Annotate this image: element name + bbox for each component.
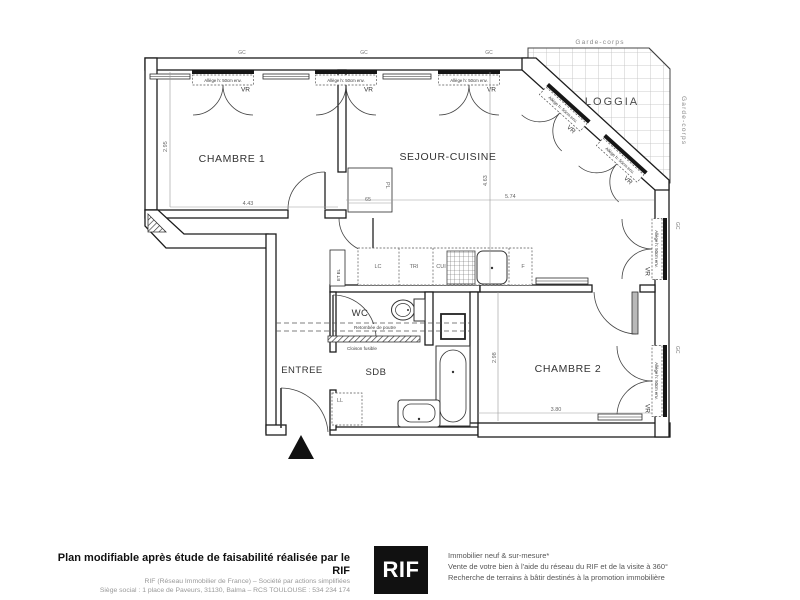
walls bbox=[145, 58, 670, 437]
room-label-loggia: LOGGIA bbox=[585, 96, 639, 108]
footer-services-block: Immobilier neuf & sur-mesure* Vente de v… bbox=[448, 550, 768, 583]
allege-label: Allège h: 50cm env. bbox=[450, 78, 487, 83]
room-label-sdb: SDB bbox=[365, 367, 386, 378]
footer-left-block: Plan modifiable après étude de faisabili… bbox=[40, 552, 350, 595]
door-chambre2-swing bbox=[594, 292, 636, 334]
wall-chambre2-north-a bbox=[480, 285, 592, 292]
footer: Plan modifiable après étude de faisabili… bbox=[0, 540, 800, 600]
vr-label: VR bbox=[644, 267, 651, 276]
vr-label: VR bbox=[644, 404, 651, 413]
footer-service-1: Immobilier neuf & sur-mesure* bbox=[448, 550, 768, 561]
bathtub bbox=[436, 346, 470, 426]
room-label-chambre2: CHAMBRE 2 bbox=[535, 363, 602, 375]
window-sejour-2: Allège h: 50cm env. VR bbox=[438, 70, 500, 115]
allege-label: Allège h: 50cm env. bbox=[327, 78, 364, 83]
wall-chambre1-south-b bbox=[325, 210, 346, 218]
floor-plan-drawing: Allège h: 50cm env. VR Allège h: 50cm en… bbox=[0, 0, 800, 540]
allege-label: Allège h: 50cm env. bbox=[654, 362, 659, 399]
footer-company-line: RIF (Réseau Immobilier de France) – Soci… bbox=[40, 578, 350, 587]
gc-label: GC bbox=[674, 222, 680, 230]
footer-address-line: Siège social : 1 place de Paveurs, 31130… bbox=[40, 587, 350, 596]
wall-wc-east bbox=[425, 292, 433, 345]
dim-chambre2-depth: 2.98 bbox=[492, 352, 498, 363]
door-entrance-swing bbox=[281, 388, 328, 432]
kitchen-tri-label: TRI bbox=[410, 264, 419, 270]
vr-label: VR bbox=[241, 87, 250, 94]
window-chambre2: Allège h: 50cm env. VR bbox=[617, 345, 667, 417]
door-chambre2-leaf bbox=[632, 292, 638, 334]
kitchen-lc-label: LC bbox=[374, 264, 381, 270]
footer-service-3: Recherche de terrains à bâtir destinés à… bbox=[448, 572, 768, 583]
wall-sdb-west-a bbox=[330, 341, 336, 352]
fusible-partition bbox=[328, 336, 420, 342]
rif-logo: RIF bbox=[374, 546, 428, 594]
wall-chambre1-south-a bbox=[145, 210, 288, 218]
dim-chambre1-depth: 2.95 bbox=[163, 141, 169, 152]
window-sejour-east: Allège h: 50cm env. VR bbox=[622, 218, 667, 280]
kitchen: LC TRI CUI F ET EL bbox=[330, 248, 532, 286]
closet-pl-label: PL bbox=[384, 182, 390, 189]
wall-south-a bbox=[266, 425, 286, 435]
radiator-sejour bbox=[536, 278, 588, 284]
room-label-entree: ENTREE bbox=[281, 365, 323, 376]
room-label-sejour: SEJOUR-CUISINE bbox=[399, 151, 496, 163]
washbasin bbox=[398, 400, 440, 427]
room-label-chambre1: CHAMBRE 1 bbox=[199, 153, 266, 165]
vr-label: VR bbox=[487, 87, 496, 94]
technical-duct bbox=[441, 314, 465, 339]
fusible-partition-label: Cloison fusible bbox=[347, 346, 377, 351]
dim-chambre2-width: 3.80 bbox=[551, 407, 562, 413]
fixed-windows bbox=[150, 74, 431, 79]
radiator-chambre2 bbox=[598, 414, 642, 420]
wall-kitchen-south bbox=[330, 285, 480, 292]
allege-label: Allège h: 50cm env. bbox=[654, 230, 659, 267]
wall-north bbox=[145, 58, 527, 70]
door-sejour-swing bbox=[339, 218, 373, 252]
gc-label: GC bbox=[674, 346, 680, 354]
wall-south-b bbox=[330, 427, 478, 435]
wall-chambre2-south bbox=[478, 423, 670, 437]
wall-sdb-east bbox=[470, 292, 478, 423]
floor-plan-page: Allège h: 50cm env. VR Allège h: 50cm en… bbox=[0, 0, 800, 600]
kitchen-cui-label: CUI bbox=[436, 264, 446, 270]
beam-drop-label: Retombée de poutre bbox=[354, 325, 396, 330]
wall-chambre2-north-b bbox=[640, 285, 655, 292]
entrance-arrow-icon bbox=[288, 435, 314, 459]
gc-label: GC bbox=[360, 50, 368, 56]
dim-sejour-width: 5.74 bbox=[505, 194, 516, 200]
window-chambre1: Allège h: 50cm env. VR bbox=[192, 70, 254, 115]
washing-machine-label: LL bbox=[337, 398, 343, 404]
closet-pl: PL bbox=[348, 168, 392, 212]
footer-title: Plan modifiable après étude de faisabili… bbox=[40, 552, 350, 578]
gc-label: GC bbox=[485, 50, 493, 56]
door-chambre1-swing bbox=[288, 172, 325, 209]
garde-corps-top-label: Garde-corps bbox=[575, 39, 624, 46]
wall-entree-west bbox=[266, 234, 276, 433]
toilet bbox=[392, 299, 426, 321]
allege-label: Allège h: 50cm env. bbox=[204, 78, 241, 83]
electrical-box-label: ET EL bbox=[336, 269, 341, 281]
room-label-wc: WC bbox=[352, 308, 369, 319]
washing-machine: LL bbox=[332, 393, 362, 425]
dim-chambre1-width: 4.43 bbox=[243, 201, 254, 207]
vr-label: VR bbox=[364, 87, 373, 94]
gc-label: GC bbox=[238, 50, 246, 56]
dim-sejour-depth: 4.63 bbox=[483, 175, 489, 186]
wall-west bbox=[145, 58, 157, 210]
kitchen-draining-board bbox=[447, 251, 475, 284]
garde-corps-right-label: Garde-corps bbox=[680, 96, 687, 145]
footer-service-2: Vente de votre bien à l'aide du réseau d… bbox=[448, 561, 768, 572]
